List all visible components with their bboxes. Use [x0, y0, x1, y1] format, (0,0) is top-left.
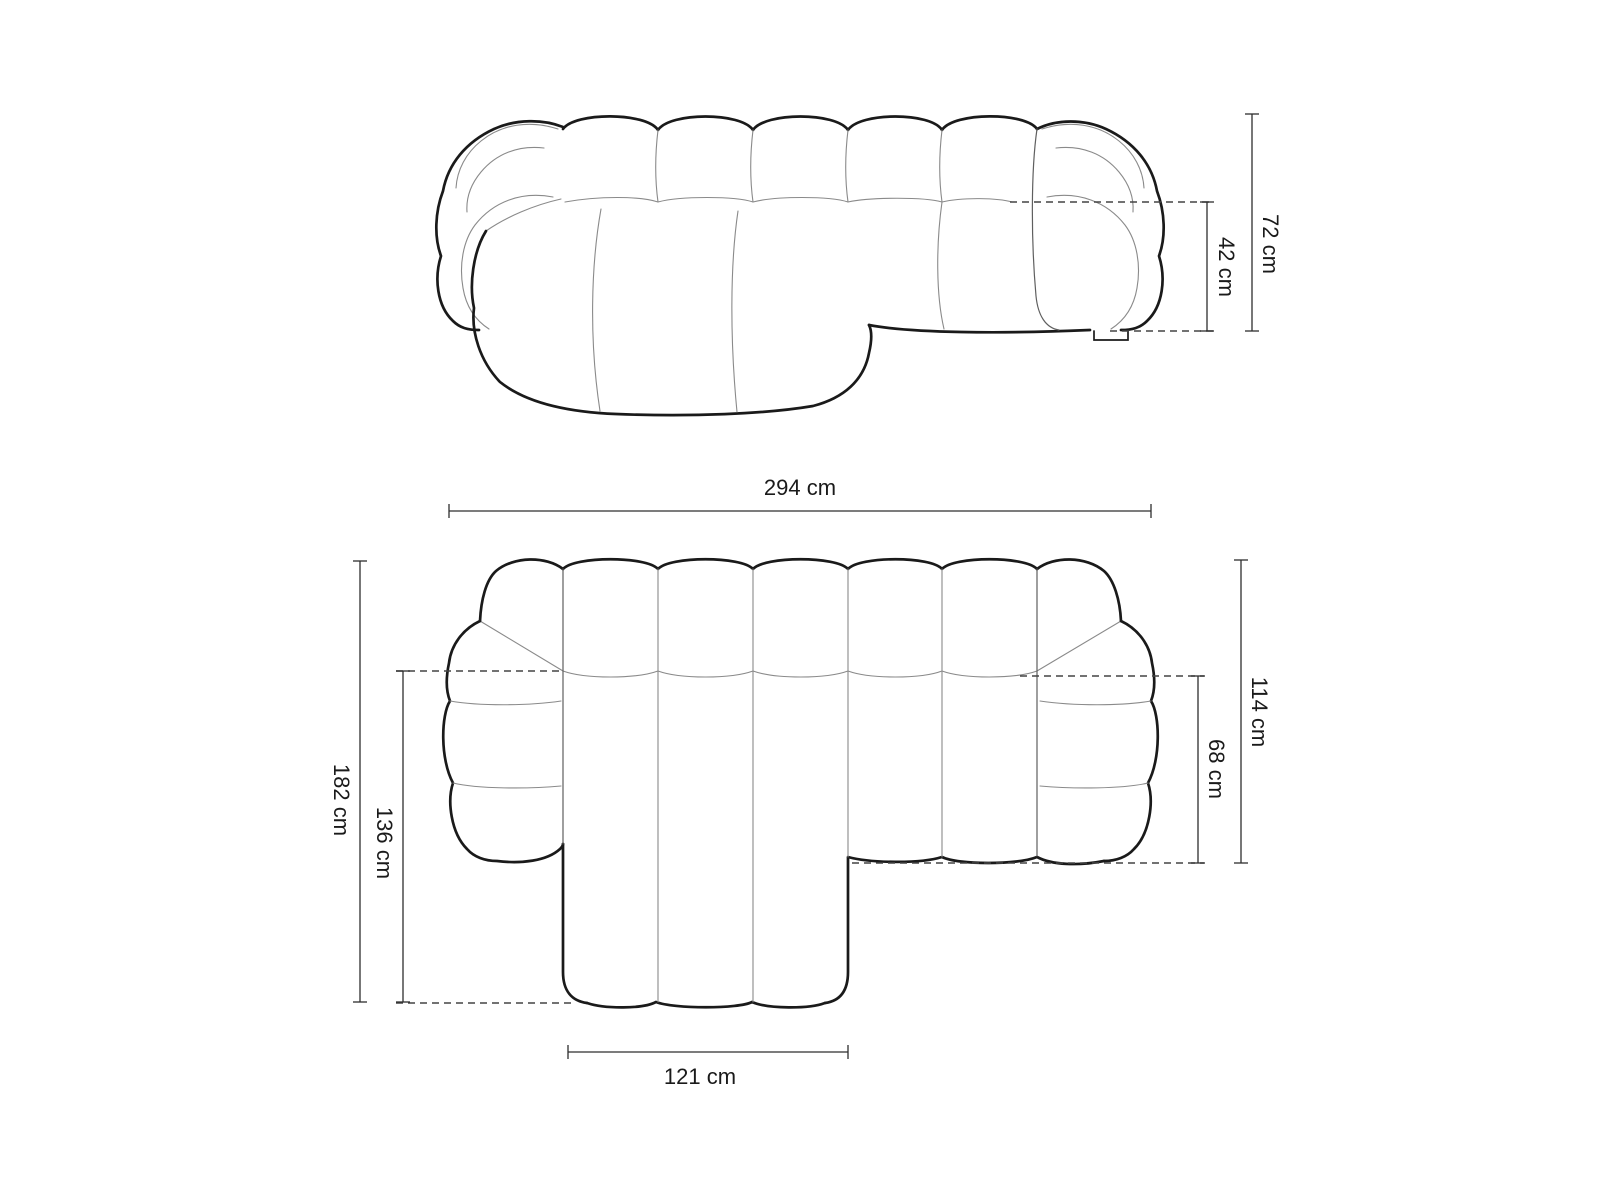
seat-depth-label: 68 cm	[1205, 739, 1227, 799]
front-back-seam	[656, 130, 658, 202]
sofa-drawing	[0, 0, 1600, 1200]
front-right-arm-fold	[1047, 195, 1139, 329]
top-chaise-bottom	[587, 1002, 825, 1007]
sofa-dimension-diagram: 72 cm 42 cm 294 cm 182 cm 136 cm 114 cm …	[0, 0, 1600, 1200]
front-back-cushions	[563, 116, 1037, 130]
chaise-depth-label: 136 cm	[373, 807, 395, 879]
front-chaise-top-seam	[486, 199, 561, 231]
top-chaise-right-edge	[825, 858, 848, 1003]
front-left-arm-fold	[456, 124, 558, 188]
top-view	[443, 559, 1158, 1007]
front-left-arm	[436, 121, 563, 330]
front-chaise-divider	[732, 211, 738, 412]
overall-height-label: 72 cm	[1259, 214, 1281, 274]
body-depth-label: 114 cm	[1248, 677, 1270, 748]
top-right-arm	[1104, 621, 1158, 861]
front-foot	[1094, 331, 1128, 340]
top-right-arm-seam	[1040, 701, 1151, 705]
front-right-arm	[1037, 122, 1164, 331]
overall-depth-label: 182 cm	[330, 764, 352, 836]
top-left-arm	[443, 621, 563, 862]
chaise-width-label: 121 cm	[664, 1066, 736, 1088]
front-back-seam	[940, 130, 942, 202]
top-left-arm-seam	[450, 701, 561, 705]
front-right-arm-boundary	[1032, 129, 1059, 330]
top-right-corner	[1037, 559, 1121, 621]
top-seat-seam	[563, 671, 1037, 677]
front-seat-seam	[565, 198, 1012, 203]
top-chaise-left-edge	[563, 844, 587, 1003]
front-chaise-divider	[593, 209, 601, 411]
front-base-edge	[869, 325, 1090, 332]
top-left-corner-seam	[480, 621, 563, 671]
front-chaise	[472, 231, 871, 415]
front-seat-divider	[938, 202, 944, 329]
top-left-arm-seam	[453, 783, 561, 788]
top-back-cushions	[563, 559, 1037, 569]
top-right-corner-seam	[1037, 621, 1121, 671]
front-left-arm-fold	[467, 147, 544, 212]
front-view	[436, 116, 1163, 415]
top-right-arm-seam	[1040, 783, 1148, 788]
front-right-arm-fold	[1042, 124, 1144, 188]
front-back-seam	[751, 130, 753, 202]
overall-width-label: 294 cm	[764, 477, 836, 499]
seat-height-label: 42 cm	[1215, 237, 1237, 297]
top-left-corner	[480, 559, 563, 621]
front-back-seam	[846, 130, 848, 202]
